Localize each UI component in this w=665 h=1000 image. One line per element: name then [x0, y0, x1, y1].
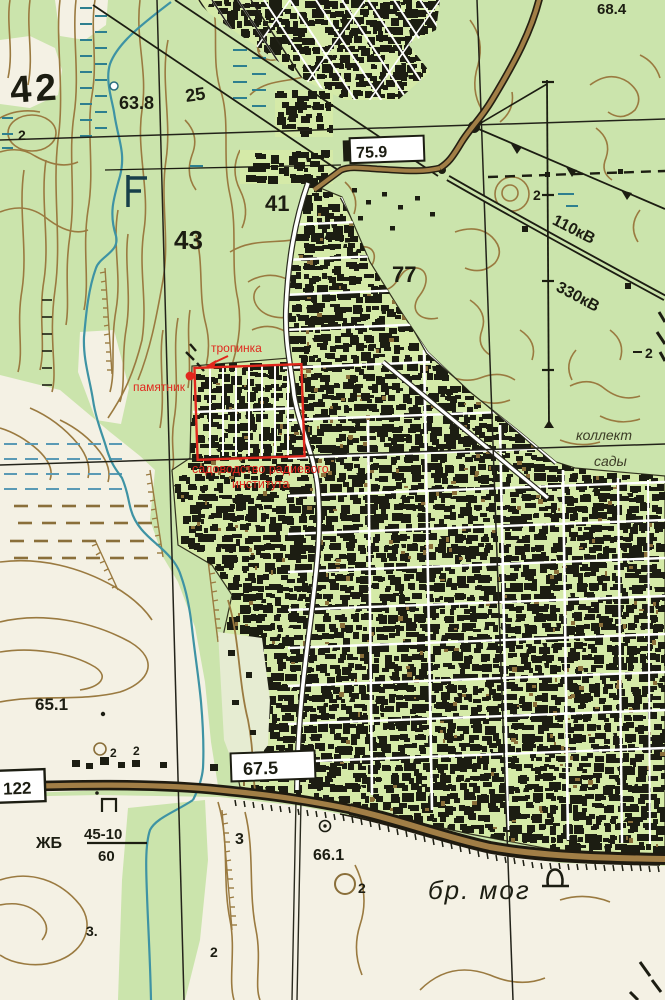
svg-text:41: 41	[265, 191, 289, 216]
svg-text:памятник: памятник	[133, 380, 186, 394]
svg-text:2: 2	[645, 345, 653, 361]
svg-text:садоводство радиевого: садоводство радиевого	[192, 462, 329, 476]
svg-text:2: 2	[133, 744, 140, 758]
svg-text:42: 42	[9, 66, 62, 111]
svg-text:60: 60	[98, 848, 115, 865]
svg-text:2: 2	[358, 880, 366, 896]
svg-text:2: 2	[533, 187, 541, 203]
svg-text:65.1: 65.1	[35, 695, 68, 714]
svg-text:2: 2	[210, 944, 218, 960]
svg-text:тропинка: тропинка	[211, 341, 262, 355]
svg-text:63.8: 63.8	[119, 93, 154, 113]
svg-text:ЖБ: ЖБ	[35, 835, 62, 852]
svg-text:института: института	[232, 477, 290, 491]
svg-text:77: 77	[392, 262, 416, 287]
svg-text:2: 2	[110, 746, 117, 760]
svg-text:сады: сады	[594, 453, 628, 469]
svg-text:3.: 3.	[86, 923, 98, 939]
svg-text:66.1: 66.1	[313, 847, 344, 864]
svg-text:45-10: 45-10	[84, 826, 122, 843]
svg-text:75.9: 75.9	[356, 144, 388, 162]
svg-text:бр. мог: бр. мог	[428, 875, 531, 905]
svg-text:67.5: 67.5	[243, 758, 279, 779]
svg-text:коллект: коллект	[576, 427, 632, 443]
svg-text:2: 2	[18, 127, 26, 143]
svg-text:43: 43	[174, 225, 203, 255]
svg-text:25: 25	[184, 83, 207, 106]
svg-text:122: 122	[3, 779, 32, 799]
svg-text:3: 3	[235, 831, 244, 848]
svg-text:68.4: 68.4	[597, 1, 627, 18]
